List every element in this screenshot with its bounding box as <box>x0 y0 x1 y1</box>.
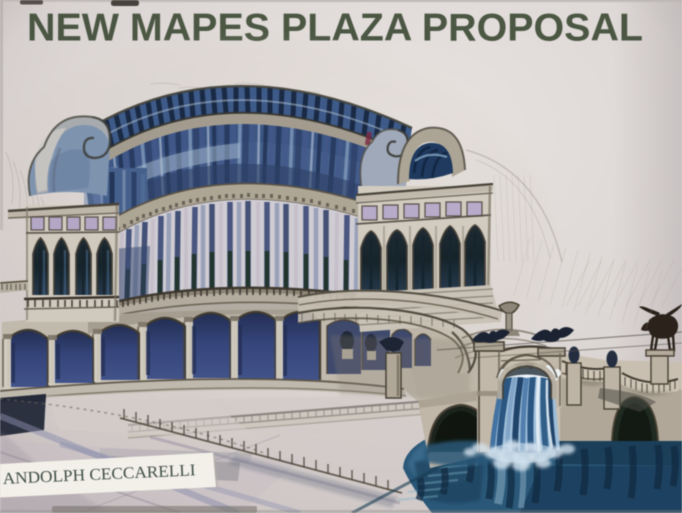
svg-text:NEW MAPES PLAZA PROPOSAL: NEW MAPES PLAZA PROPOSAL <box>27 7 643 50</box>
